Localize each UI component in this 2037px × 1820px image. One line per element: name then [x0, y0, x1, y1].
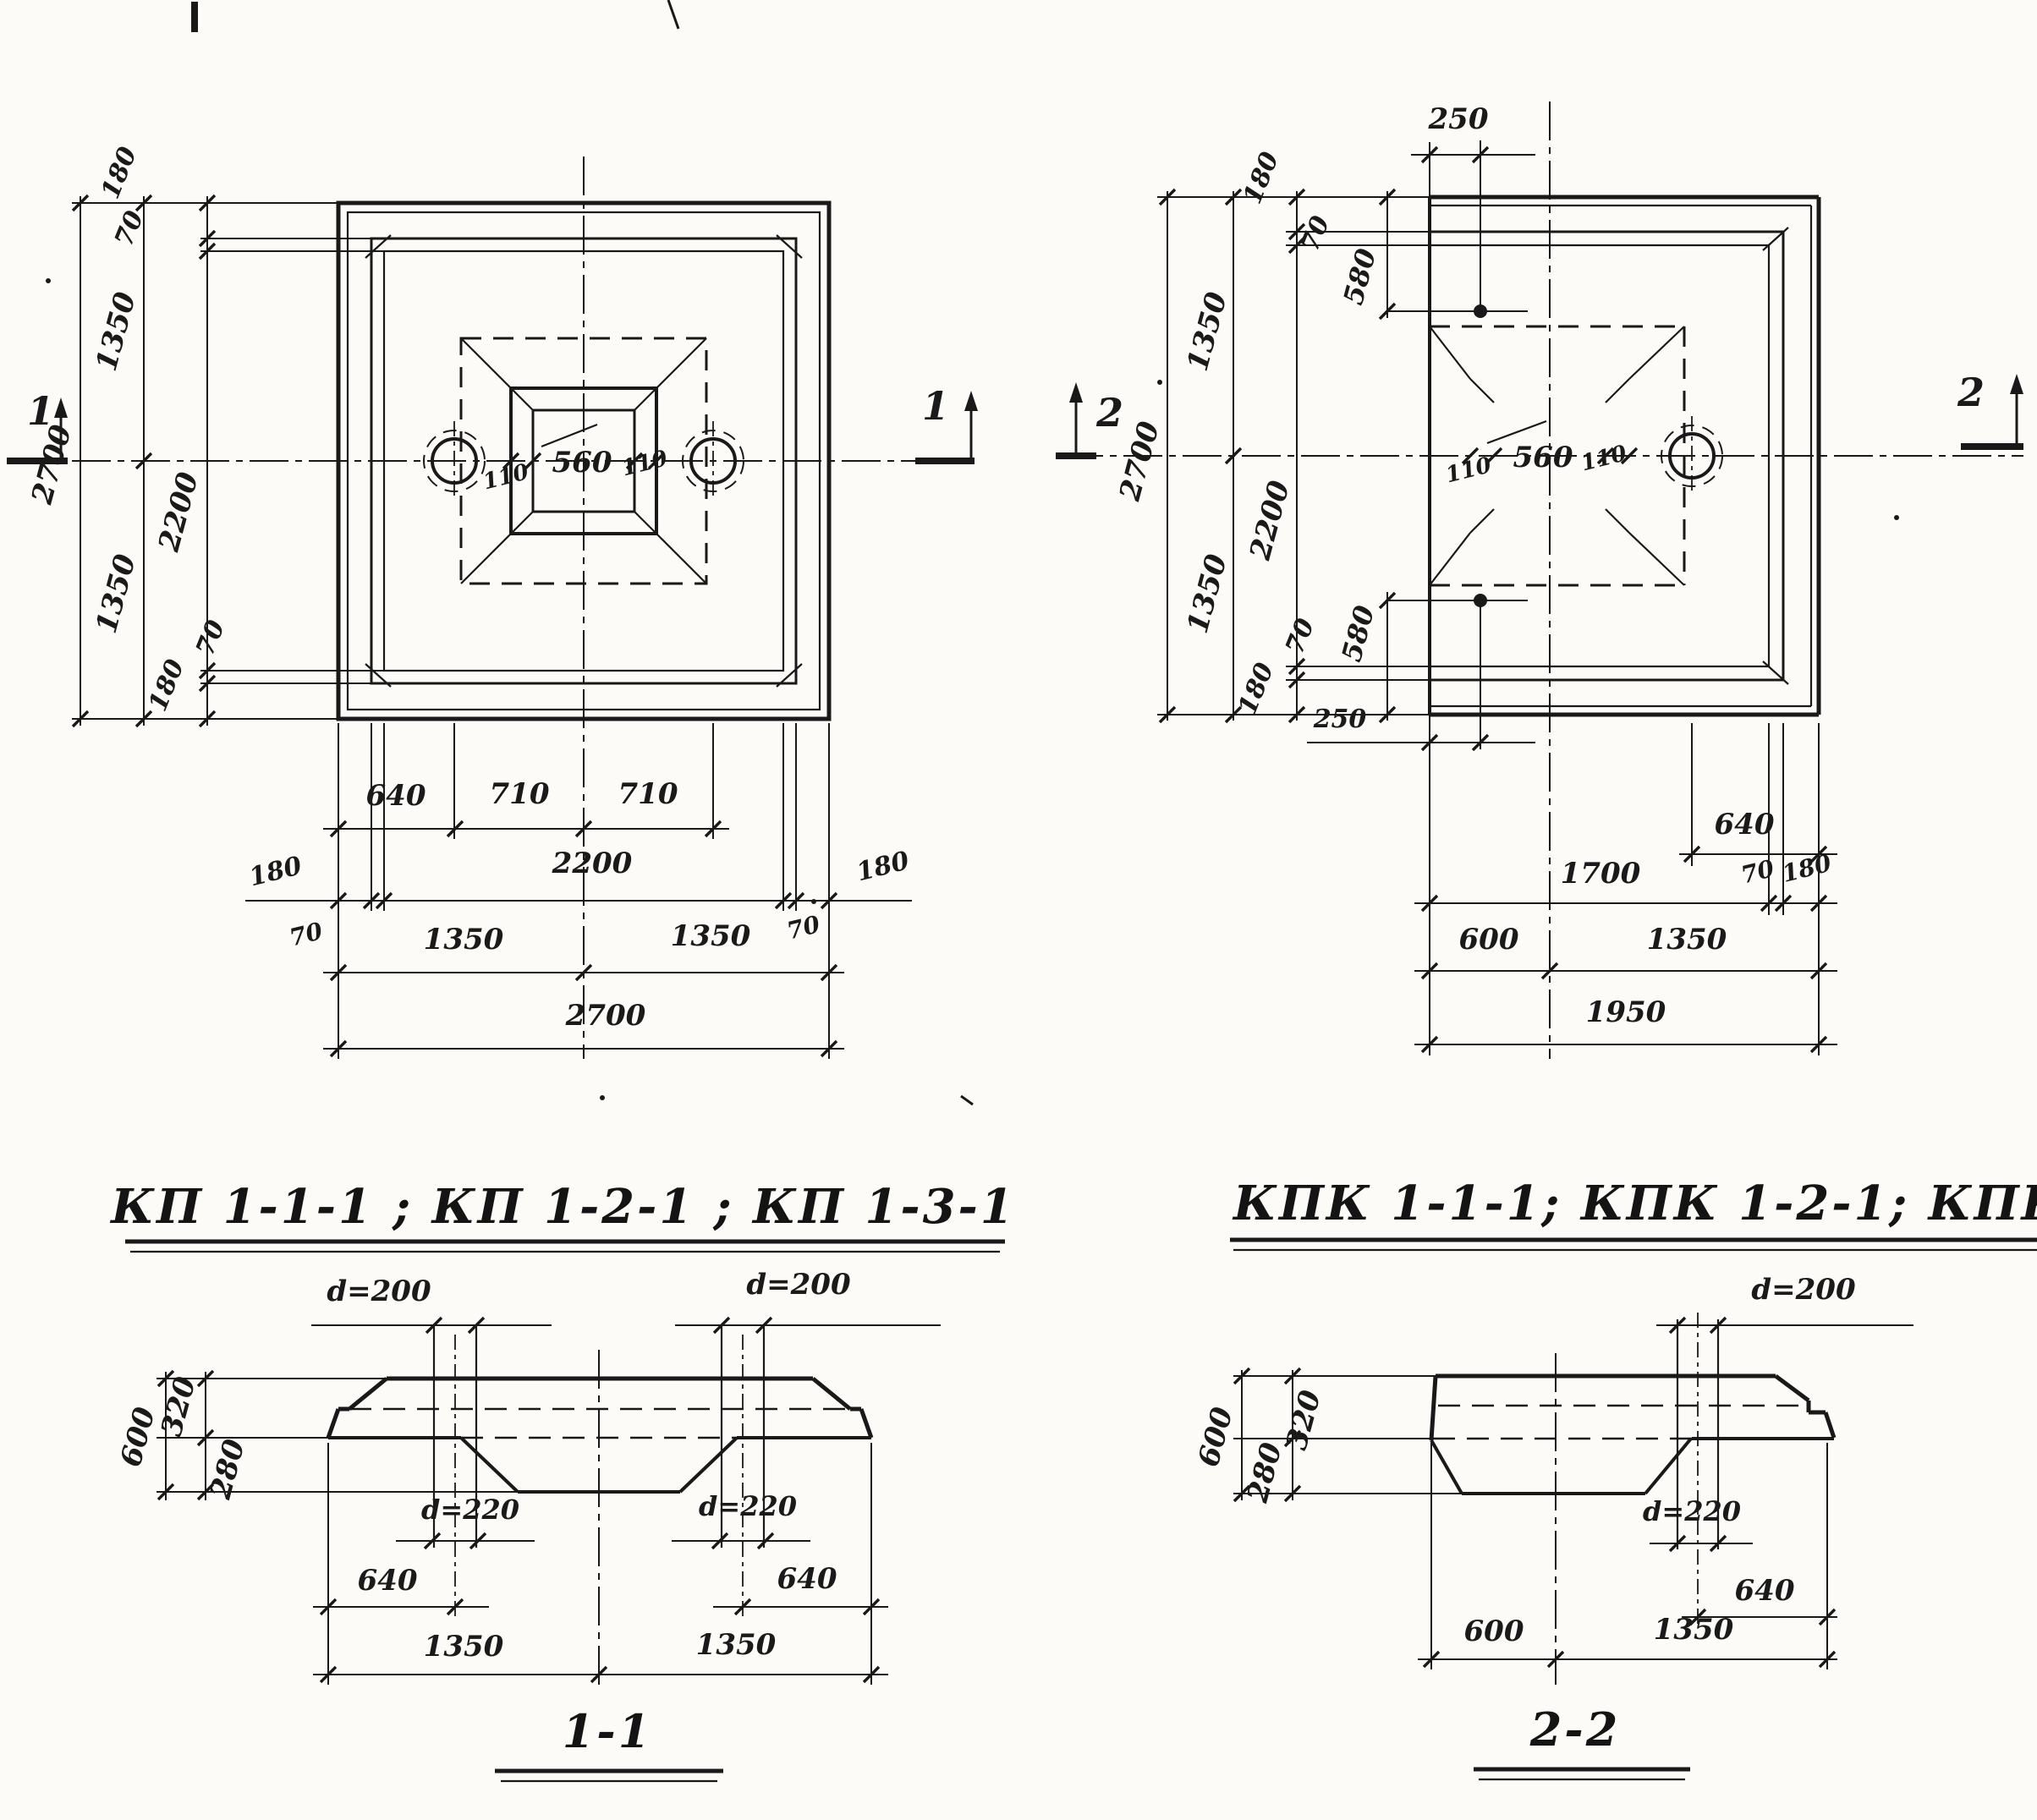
outline-line [861, 1409, 871, 1438]
outline-line [461, 1438, 518, 1492]
dimension-label: 180 [96, 143, 143, 203]
section-1-1-title: 1-1 [563, 1704, 653, 1758]
dimension-label: 2200 [152, 469, 206, 556]
dimension-label: 280 [204, 1435, 252, 1503]
dimension-label: 320 [1280, 1386, 1328, 1453]
plan-left-caption: КП 1-1-1 ; КП 1-2-1 ; КП 1-3-1 [109, 1179, 1016, 1235]
dimension-label: 110 [1443, 452, 1494, 488]
section-view-arrowhead [964, 391, 978, 411]
outline-line [1645, 1439, 1691, 1494]
dimension-label: 70 [190, 616, 231, 660]
section-2-2: d=200600320280d=2206406001350 2-2 [1192, 1273, 1913, 1779]
section-view-arrowhead [1069, 382, 1083, 403]
dimension-label: 1700 [1561, 857, 1641, 891]
outline-line [328, 1409, 338, 1438]
dimension-label: 70 [1280, 614, 1320, 658]
dimension-label: 580 [1337, 245, 1382, 308]
dimension-label: 1350 [90, 551, 143, 637]
dimension-label: 1950 [1586, 995, 1666, 1029]
section-2-2-labels: d=200600320280d=2206406001350 [1192, 1273, 1856, 1648]
dimension-label: 70 [287, 917, 326, 952]
section-marker-numeral: 1 [27, 388, 54, 434]
outline-line [1606, 509, 1629, 533]
outline-line [1431, 1376, 1436, 1440]
dimension-label: d=220 [1643, 1495, 1741, 1527]
anchor-point-dot [1157, 380, 1162, 385]
section-1-1: d=200d=200600320280d=220d=22064064013501… [114, 1268, 941, 1781]
dimension-label: 180 [246, 851, 305, 892]
plan-right: 2502700135013502200180705807058018025011… [1056, 101, 2023, 1059]
anchor-point-dot [46, 278, 51, 283]
dimension-label: d=220 [699, 1490, 797, 1522]
dimension-label: d=200 [1751, 1273, 1856, 1307]
outline-line [461, 338, 511, 388]
section-marker-numeral: 2 [1095, 390, 1123, 436]
dimension-label: d=200 [746, 1268, 851, 1302]
section-2-2-title: 2-2 [1529, 1702, 1621, 1757]
section-view-arrowhead [2010, 374, 2023, 394]
outline-line [656, 534, 706, 584]
outline-line [511, 388, 533, 410]
dimension-label: 1350 [1647, 923, 1727, 957]
dimension-label: 1350 [1181, 551, 1234, 637]
dimension-label: 1350 [671, 919, 751, 953]
dimension-label: 640 [777, 1562, 837, 1596]
section-1-1-geometry [156, 1318, 941, 1781]
dimension-label: 2700 [565, 999, 646, 1033]
outline-line [461, 534, 511, 584]
dimension-label: 2700 [25, 421, 79, 508]
dimension-label: 70 [1738, 854, 1777, 890]
dimension-label: d=200 [327, 1275, 431, 1308]
dimension-label: 640 [1735, 1574, 1795, 1608]
outline-line [634, 388, 656, 410]
dimension-label: 180 [1238, 148, 1285, 208]
plan-left: 2700135013502200180707018011056011064071… [7, 143, 978, 1059]
dimension-label: 560 [552, 446, 612, 480]
outline-line [1776, 1376, 1809, 1401]
anchor-point-dot [600, 1095, 605, 1100]
drawing-sheet: 2700135013502200180707018011056011064071… [0, 0, 2037, 1820]
dimension-label: 710 [618, 777, 678, 811]
dimension-label: 180 [143, 655, 190, 715]
dimension-label: 640 [358, 1564, 418, 1598]
dimension-label: 180 [1233, 659, 1280, 719]
outline-line [634, 512, 656, 534]
outline-line [1470, 379, 1494, 403]
outline-line [349, 1379, 387, 1409]
outline-line [961, 1096, 973, 1105]
outline-line [680, 1438, 737, 1492]
dimension-label: 250 [1313, 704, 1367, 734]
dimension-label: 110 [619, 446, 670, 481]
dimension-label: 1350 [90, 288, 143, 375]
outline-line [1431, 1440, 1462, 1494]
anchor-point-dot [811, 899, 816, 904]
foundation-drawing: 2700135013502200180707018011056011064071… [0, 0, 2037, 1820]
dimension-label: 70 [784, 910, 823, 946]
dimension-label: 600 [1192, 1403, 1240, 1470]
dimension-label: 1350 [424, 923, 504, 957]
dimension-label: 710 [490, 777, 550, 811]
dimension-label: 580 [1335, 602, 1381, 665]
dimension-label: 2200 [1244, 477, 1297, 564]
outline-line [1430, 533, 1470, 585]
dimension-label: 110 [480, 459, 531, 495]
dimension-label: d=220 [421, 1494, 519, 1526]
plan-right-labels: 2502700135013502200180705807058018025011… [1095, 102, 1985, 1029]
outline-line [1606, 379, 1629, 403]
outline-line [1470, 509, 1494, 533]
captions: КП 1-1-1 ; КП 1-2-1 ; КП 1-3-1 КПК 1-1-1… [109, 1176, 2037, 1252]
section-view-arrowhead [54, 397, 68, 418]
outline-line [813, 1379, 850, 1409]
dimension-label: 70 [1295, 211, 1336, 255]
dimension-label: 1350 [424, 1630, 504, 1664]
anchor-point-dot [1474, 594, 1487, 607]
dimension-label: 640 [1715, 808, 1775, 841]
outline-line [668, 0, 678, 29]
outline-line [541, 425, 597, 447]
dimension-label: 2200 [552, 847, 633, 880]
dimension-label: 640 [366, 779, 426, 813]
outline-line [1430, 326, 1470, 379]
section-1-1-labels: d=200d=200600320280d=220d=22064064013501… [114, 1268, 851, 1664]
dimension-label: 110 [1579, 441, 1629, 476]
anchor-point-dot [1894, 515, 1899, 520]
dimension-label: 250 [1428, 102, 1489, 136]
section-marker-numeral: 2 [1957, 370, 1985, 415]
dimension-label: 600 [1459, 923, 1519, 957]
dimension-label: 280 [1241, 1439, 1289, 1506]
outline-line [1629, 326, 1684, 379]
dimension-label: 560 [1513, 441, 1573, 474]
plan-right-caption: КПК 1-1-1; КПК 1-2-1; КПК 1-3-1 [1232, 1176, 2037, 1231]
dimension-label: 1350 [1181, 288, 1234, 375]
dimension-label: 600 [114, 1403, 162, 1470]
outline-line [1629, 533, 1684, 585]
dimension-label: 1350 [696, 1628, 777, 1662]
outline-line [656, 338, 706, 388]
outline-line [511, 512, 533, 534]
dimension-label: 600 [1464, 1614, 1524, 1648]
outline-line [1826, 1412, 1834, 1438]
anchor-point-dot [1474, 304, 1487, 318]
dimension-label: 1350 [1654, 1613, 1734, 1647]
plan-left-labels: 2700135013502200180707018011056011064071… [25, 143, 949, 1033]
dimension-label: 180 [854, 846, 912, 887]
section-marker-numeral: 1 [922, 383, 949, 429]
